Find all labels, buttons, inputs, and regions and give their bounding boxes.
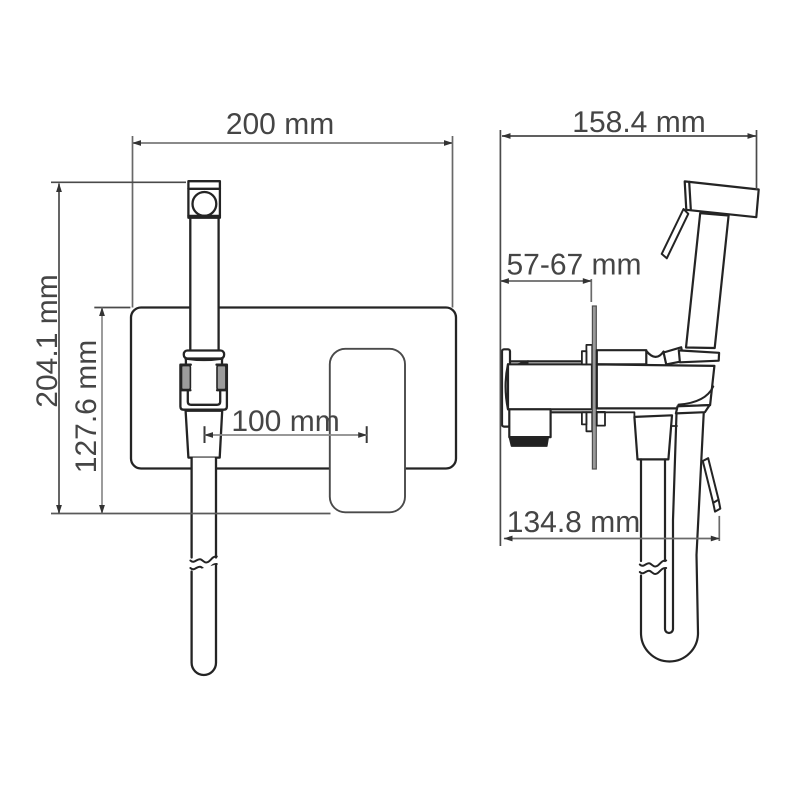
svg-text:57-67 mm: 57-67 mm (506, 248, 641, 281)
svg-text:100 mm: 100 mm (231, 405, 339, 438)
svg-text:127.6 mm: 127.6 mm (70, 340, 103, 473)
svg-text:204.1 mm: 204.1 mm (31, 274, 64, 407)
svg-text:200 mm: 200 mm (226, 108, 334, 141)
svg-text:158.4 mm: 158.4 mm (572, 106, 705, 139)
svg-text:134.8 mm: 134.8 mm (507, 506, 640, 539)
